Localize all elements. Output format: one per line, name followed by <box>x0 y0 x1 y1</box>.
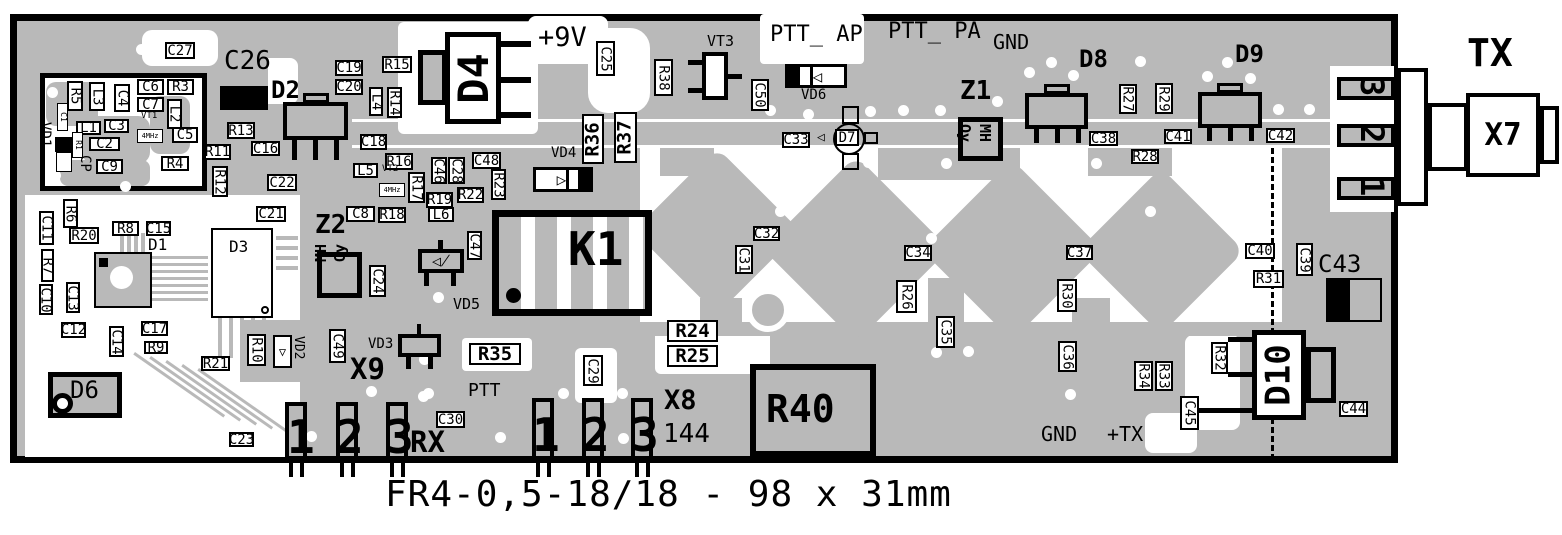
label-C24: C24 <box>369 265 386 297</box>
label-C19: C19 <box>335 60 363 76</box>
transistor-body <box>1198 92 1262 128</box>
text-R40: R40 <box>766 390 835 428</box>
label-R22: R22 <box>457 187 484 203</box>
text-C43: C43 <box>1318 252 1361 276</box>
diode-VD6: ◁ <box>785 64 847 88</box>
diode-VD5: ◁̸ <box>418 249 464 273</box>
d1-pin1-mark <box>99 258 108 267</box>
via <box>366 386 377 397</box>
label-4MHz: 4MHz <box>379 183 405 197</box>
pcb-layout-drawing: ◁ ▷ ◁̸ ▽ ◁ FR4-0,5-18/18 - 98 x 31mm D4D… <box>0 0 1562 535</box>
label-R21: R21 <box>201 356 230 371</box>
transistor-body <box>283 102 348 140</box>
label-C17: C17 <box>141 321 168 336</box>
trace <box>229 318 233 358</box>
d7-pad <box>842 153 859 170</box>
transistor-tab <box>303 93 329 103</box>
text-MH: MH <box>977 124 992 142</box>
label-R32: R32 <box>1211 342 1228 374</box>
trace <box>152 277 208 280</box>
label-C20: C20 <box>335 79 363 95</box>
text-VT3: VT3 <box>707 34 734 49</box>
trace <box>152 263 208 266</box>
label-C27: C27 <box>165 42 195 59</box>
trace <box>152 284 208 287</box>
text-VT1: VT1 <box>141 112 157 121</box>
via <box>941 158 952 169</box>
text-2: 2 <box>1356 124 1388 143</box>
via <box>1222 57 1233 68</box>
label-R25: R25 <box>667 345 718 367</box>
label-C42: C42 <box>1266 128 1295 143</box>
transistor-body <box>1025 93 1088 129</box>
label-D10: D10 <box>1259 344 1299 405</box>
text-3: 3 <box>1356 77 1388 96</box>
label-R8: R8 <box>112 221 139 236</box>
d7-pad-arrow: ◁ <box>817 131 825 144</box>
d3-pin1-circle <box>261 306 269 314</box>
label-C12: C12 <box>61 322 86 338</box>
text-PTT: PTT <box>468 382 501 400</box>
via <box>47 87 58 98</box>
label-R9: R9 <box>144 341 168 354</box>
label-C47: C47 <box>467 231 482 260</box>
label-R26: R26 <box>896 280 917 313</box>
label-C49: C49 <box>329 329 346 363</box>
label-D7: D7 <box>835 129 859 146</box>
label-R33: R33 <box>1155 361 1173 391</box>
diode-VD1 <box>55 137 73 152</box>
label-R30: R30 <box>1057 279 1077 312</box>
label-R18: R18 <box>378 207 406 223</box>
via <box>558 388 569 399</box>
label-C37: C37 <box>1066 245 1093 260</box>
diode-VD2: ▽ <box>273 335 292 368</box>
trace <box>276 256 298 260</box>
via <box>1371 102 1382 113</box>
text-D6: D6 <box>70 378 99 402</box>
label-C40: C40 <box>1245 243 1275 259</box>
via <box>863 157 874 168</box>
label-C34: C34 <box>904 245 932 261</box>
text-VD5: VD5 <box>453 297 480 312</box>
label-L4: L4 <box>369 87 383 116</box>
x7-tip <box>1540 106 1559 164</box>
label-C28: C28 <box>448 157 465 184</box>
via <box>1068 70 1079 81</box>
d1-hole <box>110 266 133 289</box>
label-R23: R23 <box>491 169 506 200</box>
transistor-leg <box>1207 128 1212 141</box>
d7-pad <box>842 106 859 124</box>
label-R29: R29 <box>1155 83 1173 114</box>
label-L5: L5 <box>353 163 378 178</box>
text-X8: X8 <box>664 387 697 414</box>
label-X7: X7 <box>1484 117 1521 153</box>
text-VD1: VD1 <box>38 122 52 147</box>
label-R31: R31 <box>1253 270 1284 288</box>
text-D1: D1 <box>148 237 167 253</box>
vt3-pin <box>728 74 742 79</box>
part-D4: D4 <box>445 32 501 124</box>
transistor-leg <box>1228 128 1233 141</box>
label-L6: L6 <box>428 207 454 222</box>
label-C29: C29 <box>583 355 603 386</box>
label-R36: R36 <box>582 114 604 164</box>
text-GND: GND <box>1041 424 1077 444</box>
text-1: 1 <box>532 412 560 458</box>
text-TX: TX <box>1467 34 1513 72</box>
text-D2: D2 <box>271 78 300 102</box>
trace <box>240 318 244 358</box>
via <box>136 44 147 55</box>
label-C13: C13 <box>66 282 80 313</box>
via <box>865 106 876 117</box>
label-R20: R20 <box>69 227 99 244</box>
label-L3: L3 <box>89 82 105 111</box>
text-Z2: Z2 <box>315 212 346 238</box>
vt3-pin <box>688 88 702 93</box>
label-R19: R19 <box>426 192 453 208</box>
label-R14: R14 <box>387 87 402 118</box>
via <box>1145 206 1156 217</box>
vd3-pin <box>428 357 433 369</box>
via <box>495 432 506 443</box>
via <box>935 105 946 116</box>
text-VT2: VT2 <box>382 165 398 174</box>
label-L2: L2 <box>167 99 182 129</box>
via <box>1091 158 1102 169</box>
vd1-body <box>56 152 72 172</box>
diode-VD4: ▷ <box>533 167 593 192</box>
label-C44: C44 <box>1339 401 1368 417</box>
label-R11: R11 <box>204 144 231 160</box>
transistor-leg <box>313 140 318 160</box>
via <box>1273 104 1284 115</box>
via <box>1304 104 1315 115</box>
label-C16: C16 <box>251 141 280 156</box>
text-GND: GND <box>993 32 1029 52</box>
transistor-tab <box>1044 84 1070 94</box>
via <box>1024 67 1035 78</box>
d4-pin <box>501 41 531 47</box>
transistor-leg <box>292 140 297 160</box>
via <box>1202 71 1213 82</box>
transistor-leg <box>1249 128 1254 141</box>
label-C6: C6 <box>137 79 164 95</box>
copper-pour <box>660 148 714 176</box>
regulator-D4-tab <box>418 50 447 105</box>
label-C45: C45 <box>1180 396 1199 430</box>
label-R6: R6 <box>63 199 78 228</box>
text-X9: X9 <box>350 355 385 384</box>
text-1: 1 <box>287 414 315 460</box>
transistor-leg <box>334 140 339 160</box>
text-3: 3 <box>386 414 414 460</box>
label-C7: C7 <box>137 97 164 112</box>
trace <box>152 291 208 294</box>
via <box>926 233 937 244</box>
transistor-VT3 <box>702 52 728 100</box>
via <box>963 346 974 357</box>
label-C3: C3 <box>104 119 129 133</box>
label-R27: R27 <box>1119 84 1137 114</box>
label-C48: C48 <box>472 152 501 169</box>
label-C8: C8 <box>346 206 375 222</box>
d10-pin <box>1196 408 1254 413</box>
label-C32: C32 <box>753 226 780 241</box>
via <box>120 181 131 192</box>
label-R17: R17 <box>408 172 425 203</box>
label-R35: R35 <box>469 343 521 365</box>
transistor-leg <box>1034 129 1039 143</box>
via <box>931 347 942 358</box>
capacitor-C43-neg <box>1326 278 1348 322</box>
diode-VD3 <box>398 334 441 357</box>
via <box>618 433 629 444</box>
copper-pour <box>640 322 1282 336</box>
text-C26: C26 <box>224 48 271 74</box>
via <box>898 105 909 116</box>
trace <box>276 236 298 240</box>
label-C39: C39 <box>1296 243 1313 276</box>
via <box>418 391 429 402</box>
x7-neck <box>1428 103 1468 171</box>
text-VD6: VD6 <box>801 88 826 102</box>
label-C15: C15 <box>146 221 171 236</box>
text-PTT_-PA: PTT_ PA <box>888 21 981 43</box>
label-C41: C41 <box>1164 129 1192 144</box>
text-144: 144 <box>663 421 710 447</box>
d10-pin <box>1228 337 1254 342</box>
trace <box>276 246 298 250</box>
trace <box>152 256 208 259</box>
label-R7: R7 <box>41 249 54 282</box>
transistor-leg <box>1076 129 1081 143</box>
text-D3: D3 <box>229 239 248 255</box>
text-Oy: Oy <box>957 124 972 142</box>
label-R4: R4 <box>161 156 189 171</box>
label-D4: D4 <box>449 53 498 104</box>
label-C10: C10 <box>39 284 53 315</box>
label-C22: C22 <box>267 174 297 191</box>
transistor-leg <box>1055 129 1060 143</box>
trace <box>276 266 298 270</box>
via <box>176 203 187 214</box>
label-C50: C50 <box>751 79 769 111</box>
d7-pad <box>864 132 878 144</box>
text-1: 1 <box>1356 177 1388 196</box>
text-VD4: VD4 <box>551 146 576 160</box>
part-D10: D10 <box>1252 330 1306 420</box>
label-C14: C14 <box>109 326 124 357</box>
label-C25: C25 <box>596 41 615 76</box>
label-C4: C4 <box>114 84 130 112</box>
text-VD2: VD2 <box>292 336 305 359</box>
via <box>803 109 814 120</box>
label-R28: R28 <box>1131 149 1159 164</box>
board-caption: FR4-0,5-18/18 - 98 x 31mm <box>385 477 952 513</box>
label-C5: C5 <box>172 127 198 143</box>
k1-pin1-dot <box>506 288 521 303</box>
vd5-pin <box>438 240 443 249</box>
trace <box>141 233 145 252</box>
trace <box>152 270 208 273</box>
label-R15: R15 <box>382 56 412 73</box>
text-VD3: VD3 <box>368 337 393 351</box>
via <box>1245 73 1256 84</box>
via <box>1065 389 1076 400</box>
label-R24: R24 <box>667 320 718 342</box>
label-C38: C38 <box>1089 131 1118 146</box>
label-R13: R13 <box>227 122 255 139</box>
part-X7: X7 <box>1466 93 1540 177</box>
via <box>1046 57 1057 68</box>
vd3-pin <box>406 357 411 369</box>
label-C35: C35 <box>936 316 955 348</box>
text-PTT_-AP: PTT_ AP <box>770 24 863 46</box>
label-C1: C1 <box>57 103 68 131</box>
vd5-pin <box>451 273 456 286</box>
label-C11: C11 <box>39 211 54 245</box>
via <box>617 388 628 399</box>
x7-flange <box>1397 68 1428 206</box>
text-2: 2 <box>582 412 610 458</box>
label-C46: C46 <box>431 157 447 184</box>
label-C2: C2 <box>89 137 120 151</box>
vd5-pin <box>424 273 429 286</box>
vd3-pin <box>417 324 421 334</box>
label-C31: C31 <box>735 245 753 274</box>
label-C18: C18 <box>360 134 387 150</box>
text-D8: D8 <box>1079 47 1108 71</box>
label-C23: C23 <box>229 432 254 447</box>
label-C21: C21 <box>256 206 286 222</box>
label-R3: R3 <box>167 79 194 95</box>
text-+9V: +9V <box>538 24 587 51</box>
text-Oy: Oy <box>333 244 348 262</box>
trace <box>218 318 222 358</box>
vt3-pin <box>688 60 702 65</box>
label-C33: C33 <box>782 132 810 148</box>
text-CP: CP <box>78 155 92 172</box>
capacitor-C43-body <box>1348 278 1382 322</box>
text-D9: D9 <box>1235 42 1264 66</box>
text-Z1: Z1 <box>960 78 991 104</box>
label-R38: R38 <box>654 59 673 96</box>
text-RX: RX <box>410 428 445 457</box>
text-2: 2 <box>336 414 364 460</box>
d4-pin <box>501 77 531 83</box>
label-4MHz: 4MHz <box>137 129 163 143</box>
copper-pad-circle <box>746 288 790 332</box>
text-3: 3 <box>631 412 659 458</box>
d4-pin <box>501 112 531 118</box>
label-R10: R10 <box>247 334 266 366</box>
via <box>992 96 1003 107</box>
d10-bracket <box>1306 347 1336 403</box>
text-K1: K1 <box>568 226 623 272</box>
d10-pin <box>1228 372 1254 377</box>
trace <box>152 298 208 301</box>
label-R5: R5 <box>67 81 83 111</box>
label-C9: C9 <box>96 159 123 174</box>
label-R34: R34 <box>1134 361 1153 391</box>
transistor-tab <box>1217 83 1243 93</box>
text-+TX: +TX <box>1107 424 1143 444</box>
label-C36: C36 <box>1058 341 1077 372</box>
text-MH: MH <box>314 244 329 262</box>
label-R12: R12 <box>212 166 228 197</box>
via <box>1135 56 1146 67</box>
via <box>775 206 786 217</box>
label-R37: R37 <box>614 112 637 163</box>
via <box>433 292 444 303</box>
